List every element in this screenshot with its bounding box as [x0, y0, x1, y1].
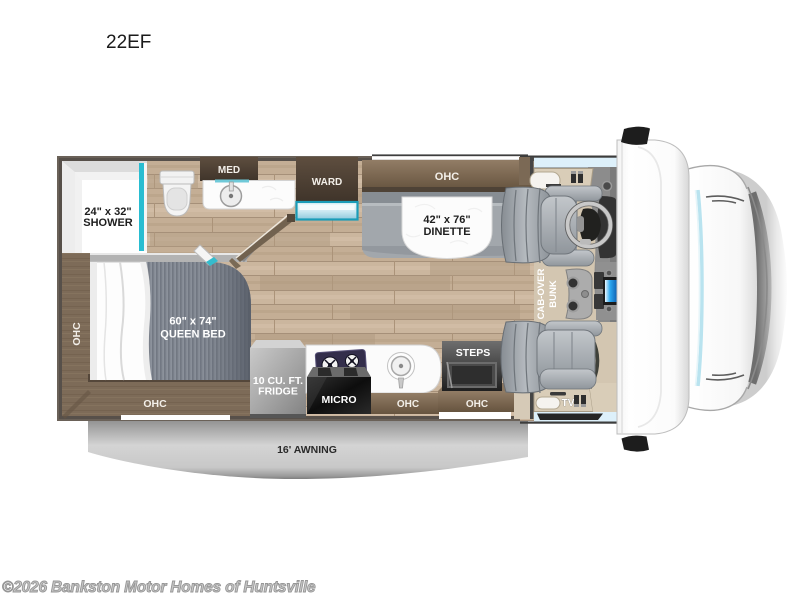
svg-text:OHC: OHC	[466, 399, 488, 410]
svg-text:FRIDGE: FRIDGE	[258, 386, 298, 398]
svg-text:DINETTE: DINETTE	[423, 226, 470, 238]
svg-text:WARD: WARD	[312, 177, 343, 188]
svg-text:60" x 74": 60" x 74"	[169, 316, 216, 328]
svg-text:42" x 76": 42" x 76"	[423, 214, 470, 226]
svg-text:OHC: OHC	[143, 398, 167, 410]
svg-text:BUNK: BUNK	[548, 280, 559, 308]
svg-text:OHC: OHC	[397, 399, 419, 410]
svg-text:22EF: 22EF	[106, 32, 151, 53]
svg-text:OHC: OHC	[71, 322, 83, 346]
svg-text:MICRO: MICRO	[322, 394, 357, 406]
svg-text:©2026 Bankston Motor Homes of: ©2026 Bankston Motor Homes of Huntsville	[2, 579, 316, 596]
svg-text:TV: TV	[562, 398, 575, 409]
svg-text:QUEEN BED: QUEEN BED	[160, 329, 225, 341]
svg-text:OHC: OHC	[435, 171, 460, 183]
svg-text:16' AWNING: 16' AWNING	[277, 444, 337, 456]
svg-text:SHOWER: SHOWER	[83, 217, 133, 229]
svg-text:CAB-OVER: CAB-OVER	[536, 269, 547, 320]
svg-text:STEPS: STEPS	[456, 347, 490, 359]
svg-text:MED: MED	[218, 165, 240, 176]
